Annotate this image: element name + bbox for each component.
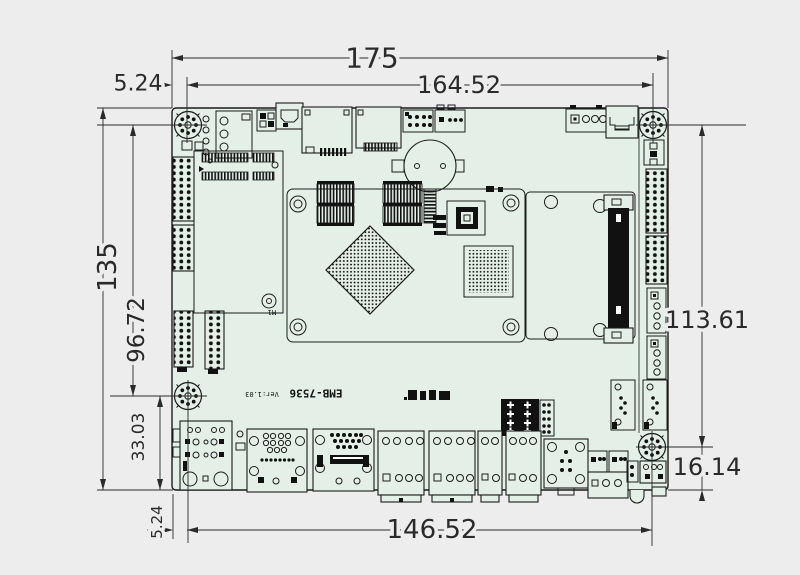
dim-bottom-left-offset: 5.24: [148, 505, 166, 538]
dim-left-bottom-offset: 33.03: [129, 413, 149, 462]
usb-double-stack: [247, 429, 307, 492]
mpcie-hole-label: M1: [268, 308, 276, 316]
dim-right-hole-span: 113.61: [665, 306, 749, 334]
dc-jack: [544, 439, 588, 495]
pin-header-2x7-right: [646, 236, 667, 284]
board-to-board-connector: [604, 195, 633, 343]
pcb-board: M1: [172, 103, 668, 503]
sim-card-slot: [356, 107, 401, 151]
pin-header-lower-left-2: [205, 311, 224, 374]
display-port-connector: [313, 429, 374, 491]
usb-port-small: [478, 431, 502, 502]
sd-card-slot: [302, 107, 352, 156]
dim-total-width: 175: [345, 42, 398, 75]
pin-header-2x10-right: [646, 169, 667, 233]
pin-header-2x7-left: [173, 225, 194, 271]
pin-header-2x10-left: [173, 157, 194, 221]
chipset-bga-chip: [464, 246, 513, 297]
lan-port-1: [378, 431, 424, 502]
board-dimension-drawing: M1: [0, 0, 800, 575]
dim-total-height: 135: [93, 242, 123, 292]
hdmi-connector: [276, 103, 303, 129]
silkscreen-model: EMB-7536: [289, 387, 342, 400]
dim-right-bottom-offset: 16.14: [673, 453, 742, 481]
audio-jack-stack: [173, 421, 232, 490]
usb-port-wide: [506, 431, 541, 502]
dim-bottom-hole-span: 146.52: [387, 515, 478, 545]
dim-left-hole-span: 96.72: [124, 297, 150, 363]
drawing-canvas: M1: [0, 0, 800, 575]
lan-port-2: [429, 431, 475, 502]
dim-top-left-offset: 5.24: [114, 72, 163, 97]
pin-header-lower-left-1: [174, 311, 193, 372]
bottom-right-corner-parts: [627, 461, 666, 503]
silkscreen-version: Ver:1.03: [245, 390, 279, 398]
usb-connector-top: [606, 106, 638, 138]
dim-top-hole-span: 164.52: [417, 71, 501, 99]
